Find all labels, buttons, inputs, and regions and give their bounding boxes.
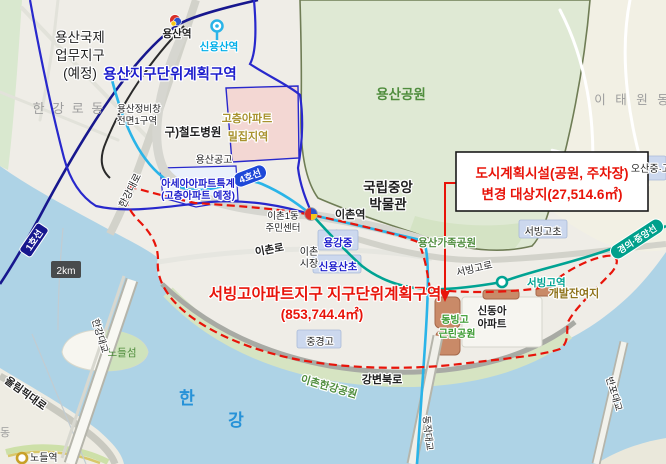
callout-line1: 도시계획시설(공원, 주차장) (475, 165, 628, 181)
ichon-market-label-2: 시장 (300, 258, 318, 270)
scale-badge-label: 2km (57, 266, 76, 277)
railway-hospital-label: 구)철도병원 (165, 125, 222, 139)
ichon1dong-label-1: 이촌1동 (267, 211, 299, 222)
yongsan-park-label: 용산공원 (376, 86, 426, 102)
yongsan-intl-label-2: 업무지구 (55, 48, 105, 63)
jeongbichang-label-2: 전면1구역 (117, 116, 157, 127)
ichon1dong-label-2: 주민센터 (266, 223, 301, 234)
dongbinggo-label-1: 동빙고 (441, 313, 469, 326)
osan-school-label: 오산중·고 (631, 163, 666, 175)
nodeul-station-label: 노들역 (30, 452, 58, 464)
yongsan-gonggo-label: 용산공고 (196, 154, 233, 166)
seobinggo-station-icon (497, 277, 507, 287)
hangangro-dong-label: 한 강 로 동 (33, 101, 106, 116)
yonggang-middle-label: 용강중 (324, 236, 353, 249)
change-site-callout-box (456, 152, 648, 211)
museum-label-1: 국립중앙 (363, 180, 413, 195)
seobinggo-district-label-2: (853,744.4㎡) (281, 306, 364, 322)
nodeul-station-icon (17, 453, 27, 463)
itaewon-dong-label: 이 태 원 동 (594, 93, 666, 107)
junggyeong-high-label: 중경고 (306, 335, 334, 348)
han-river-label-1: 한 (179, 389, 195, 408)
map-canvas: 도시계획시설(공원, 주차장) 변경 대상지(27,514.6㎡) 4호선 1호… (0, 0, 666, 464)
scale-badge: 2km (51, 261, 81, 278)
dev-remnant-label: 개발잔여지 (549, 286, 600, 300)
planning-map: 도시계획시설(공원, 주차장) 변경 대상지(27,514.6㎡) 4호선 1호… (0, 0, 666, 464)
sinyongsan-elem-label: 신용산초 (319, 260, 358, 273)
sinyongsan-station-label: 신용산역 (200, 40, 239, 53)
dongbinggo-label-2: 근린공원 (439, 327, 476, 340)
yongsan-family-park-label: 용산가족공원 (418, 236, 476, 249)
yongsan-intl-label-1: 용산국제 (55, 30, 105, 45)
ichon-station-icon (305, 208, 318, 221)
yongsan-station-label: 용산역 (163, 27, 192, 40)
ichon-market-label-1: 이촌 (300, 246, 318, 258)
gangbyeon-bukro-label: 강변북로 (362, 372, 402, 386)
yongsan-district-label: 용산지구단위계획구역 (103, 65, 236, 83)
callout-line2: 변경 대상지(27,514.6㎡) (482, 186, 623, 202)
sindonga-label-2: 아파트 (478, 317, 507, 330)
seobinggo-elem-label: 서빙고초 (525, 226, 562, 238)
sindonga-label-1: 신동아 (478, 304, 507, 317)
highrise-label-2: 밀집지역 (228, 129, 268, 143)
seobinggo-district-label-1: 서빙고아파트지구 지구단위계획구역 (209, 284, 441, 303)
nodeul-island-label: 노들섬 (108, 347, 137, 359)
highrise-label-1: 고층아파트 (222, 111, 273, 125)
asea-label-1: 아세아아파트특계 (161, 177, 235, 190)
ichon-station-label: 이촌역 (335, 207, 365, 221)
han-river-label-2: 강 (228, 411, 244, 430)
yongsan-intl-label-3: (예정) (63, 66, 97, 81)
museum-label-2: 박물관 (369, 196, 407, 212)
asea-label-2: (고층아파트 예정) (161, 189, 235, 202)
dong-partial-label: 동 (0, 427, 10, 439)
jeongbichang-label-1: 용산정비창 (117, 104, 161, 115)
